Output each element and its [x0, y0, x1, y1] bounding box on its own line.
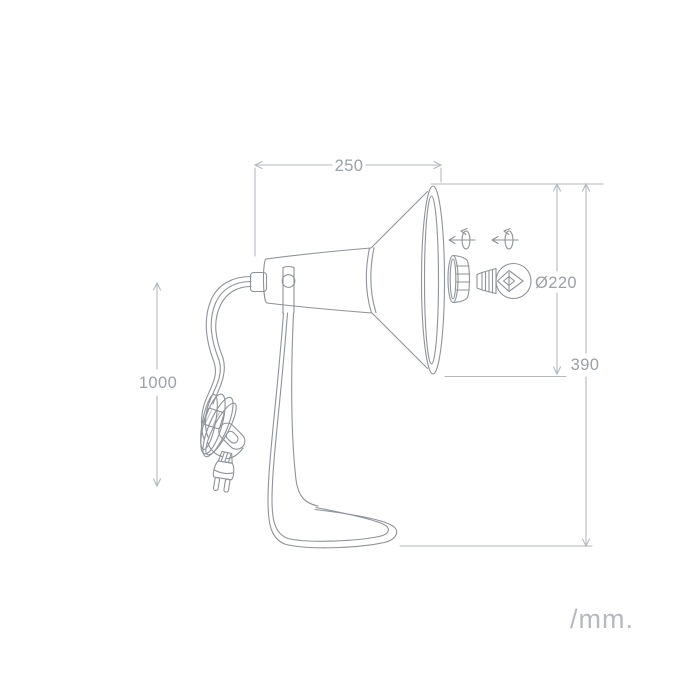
stand-leg-inner	[272, 313, 388, 541]
cable-length-label: 1000	[139, 374, 177, 392]
cable-strand	[205, 282, 251, 438]
shade-length-label: 250	[335, 157, 364, 175]
lamp-shade	[371, 186, 445, 374]
technical-drawing-page: 250 Ø220 390 1000	[0, 0, 700, 700]
cone-top-edge	[371, 192, 428, 249]
socket-face-outer	[448, 256, 458, 303]
bulb-thread-line	[486, 270, 493, 294]
shade-diameter-label: Ø220	[535, 274, 577, 292]
body-top-edge	[266, 248, 371, 259]
power-cable	[196, 277, 251, 460]
total-height-label: 390	[571, 356, 600, 374]
rotate-bulb-icon	[492, 229, 518, 250]
lamp-artwork	[196, 186, 531, 548]
rotate-socket-icon	[449, 229, 475, 250]
cone-bottom-edge	[372, 313, 428, 369]
plug-grip-hatch	[221, 453, 230, 462]
clamp-strap	[283, 267, 294, 268]
plug-prong	[213, 477, 220, 491]
stand-leg-outer	[268, 313, 397, 548]
dimension-cable-length: 1000	[139, 283, 177, 486]
body-seam	[371, 248, 376, 313]
bulb-globe	[496, 264, 531, 299]
bulb-filament	[498, 271, 524, 292]
bulb-socket	[448, 256, 470, 303]
bulb-cap	[477, 273, 482, 291]
cable-strand	[213, 287, 251, 405]
dimension-shade-diameter: Ø220	[445, 184, 577, 377]
unit-label: /mm.	[570, 604, 634, 634]
light-bulb	[477, 264, 531, 299]
plug-prong	[224, 479, 231, 493]
stand-wire	[268, 313, 397, 548]
plug-body-curve	[214, 470, 233, 475]
stand-leg-back	[292, 313, 318, 506]
lamp-body	[251, 248, 377, 313]
pivot-knob	[282, 275, 295, 288]
socket-face-inner	[450, 259, 456, 299]
shade-rim-inner	[425, 196, 439, 364]
dimension-total-height: 390	[400, 184, 603, 546]
lamp-dimension-drawing: 250 Ø220 390 1000	[0, 0, 700, 700]
